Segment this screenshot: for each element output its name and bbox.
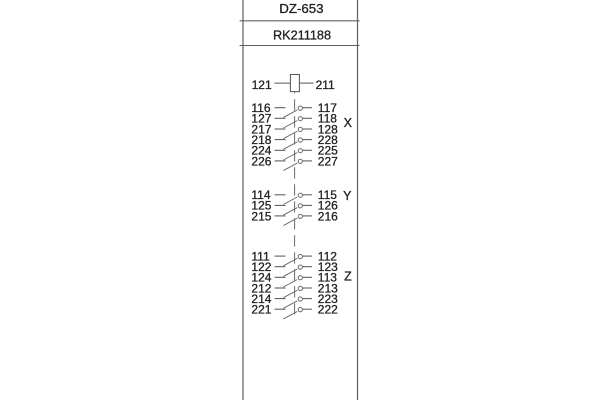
svg-text:DZ-653: DZ-653 [279, 1, 323, 16]
svg-text:121: 121 [252, 78, 272, 92]
svg-text:222: 222 [318, 303, 338, 317]
svg-text:Y: Y [343, 189, 352, 203]
svg-text:215: 215 [251, 209, 271, 223]
svg-text:X: X [344, 116, 353, 130]
svg-text:Z: Z [344, 270, 352, 284]
svg-text:221: 221 [251, 303, 271, 317]
svg-text:216: 216 [318, 209, 338, 223]
svg-text:226: 226 [251, 154, 271, 168]
svg-text:227: 227 [318, 154, 338, 168]
svg-text:RK211188: RK211188 [273, 28, 331, 42]
svg-text:211: 211 [316, 78, 335, 92]
